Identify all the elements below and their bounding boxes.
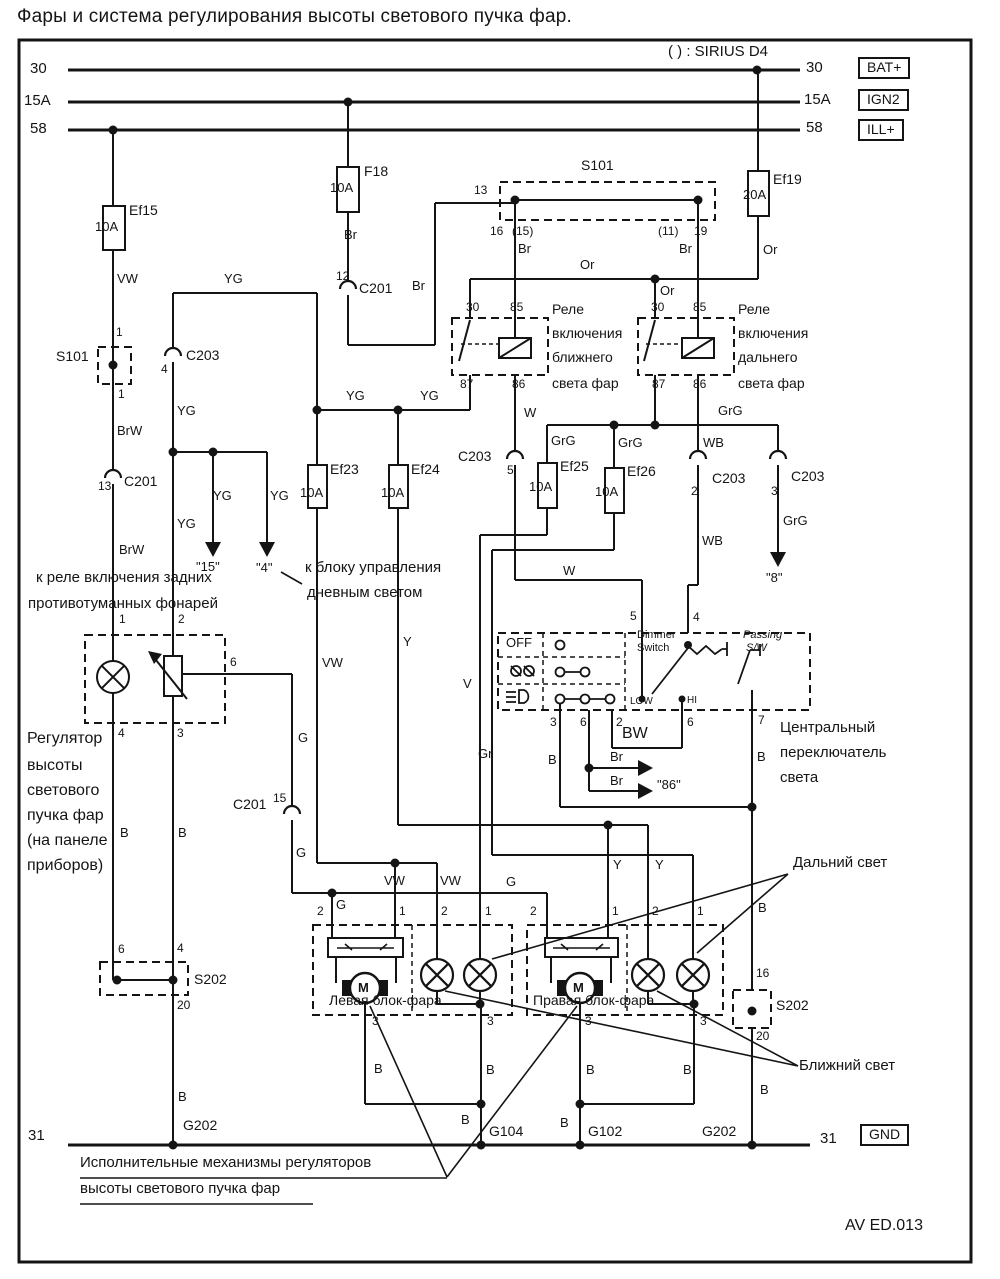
wiring-diagram-svg: [0, 0, 1000, 1279]
s202r-pin20: 20: [756, 1030, 769, 1043]
wire-g-2: G: [296, 846, 306, 860]
drl-note-line2: дневным светом: [307, 585, 422, 601]
fuse-ef25-rating: 10A: [529, 480, 552, 494]
s101-pin19: 19: [694, 225, 707, 238]
c203-5-icon: [507, 451, 523, 459]
fuse-ef23-name: Ef23: [330, 462, 359, 477]
splice-s202-right: S202: [776, 998, 809, 1013]
ground-g202-right: G202: [702, 1124, 736, 1139]
wire-y-1: Y: [403, 635, 412, 649]
switch-contacts: [506, 641, 760, 704]
sirius-note: ( ) : SIRIUS D4: [668, 44, 768, 60]
wire-wb-2: WB: [702, 534, 723, 548]
ground-g202-left: G202: [183, 1118, 217, 1133]
low-beam-callout: Ближний свет: [799, 1058, 895, 1074]
wire-vw-2: VW: [322, 656, 343, 670]
relay2-contact: [644, 320, 655, 361]
central-switch-line3: света: [780, 770, 818, 786]
wire-b-5: B: [758, 901, 767, 915]
high-beam-callout: Дальний свет: [793, 855, 887, 871]
wire-grg-4: GrG: [783, 514, 808, 528]
fuse-ef24-rating: 10A: [381, 486, 404, 500]
s101-pin11p: (11): [658, 225, 678, 238]
bus-15a-right: 15A: [804, 92, 831, 108]
central-switch-line1: Центральный: [780, 720, 875, 736]
wire-b-left1: B: [120, 826, 129, 840]
relay1-pin87: 87: [460, 378, 473, 391]
wire-grg-3: GrG: [718, 404, 743, 418]
hl-pin1b: 1: [485, 905, 492, 918]
bus-30-right: 30: [806, 60, 823, 76]
wiring-diagram-page: Фары и система регулирования высоты свет…: [0, 0, 1000, 1279]
wire-v: V: [463, 677, 472, 691]
wire-yg-7: YG: [420, 389, 439, 403]
relay-low-line2: включения: [552, 326, 622, 341]
wire-b-1: B: [374, 1062, 383, 1076]
motor-m-left: M: [358, 981, 369, 995]
relay-high-line3: дальнего: [738, 350, 798, 365]
wire-yg-2: YG: [177, 404, 196, 418]
regulator-line3: светового: [27, 783, 99, 800]
wire-vw-1: VW: [117, 272, 138, 286]
conn-c201-12: C201: [359, 281, 392, 296]
wire-b-2: B: [486, 1063, 495, 1077]
left-headlamp-label: Левая блок-фара: [329, 993, 442, 1008]
ref-arrow-8: "8": [766, 571, 782, 585]
hl-pin3b: 3: [487, 1015, 494, 1028]
wire-brw-2: BrW: [119, 543, 144, 557]
wire-b-left2: B: [178, 826, 187, 840]
hl-pin1c: 1: [612, 905, 619, 918]
fuse-ef19-rating: 20A: [743, 188, 766, 202]
fuse-f18-rating: 10A: [330, 181, 353, 195]
regulator-internals: [97, 651, 187, 699]
fuse-ef19-name: Ef19: [773, 172, 802, 187]
regulator-line4: пучка фар: [27, 808, 104, 825]
arrow-15: [205, 542, 221, 557]
reg-pin1: 1: [119, 613, 126, 626]
c201-13-icon: [105, 470, 121, 478]
wire-bw: BW: [622, 726, 648, 743]
wire-b-left3: B: [178, 1090, 187, 1104]
conn-c201-15: C201: [233, 797, 266, 812]
switch-off: OFF: [506, 636, 532, 650]
conn-c203-5: C203: [458, 449, 491, 464]
conn-c203-2: C203: [712, 471, 745, 486]
relay1-contact: [459, 320, 470, 361]
wire-grg-1: GrG: [551, 434, 576, 448]
hl-pin3d: 3: [700, 1015, 707, 1028]
splice-s101-left: S101: [56, 349, 89, 364]
regulator-line2: высоты: [27, 758, 83, 775]
ground-g104: G104: [489, 1124, 523, 1139]
arrow-8: [770, 552, 786, 567]
arrow-br-86: [638, 783, 653, 799]
wire-b-6: B: [760, 1083, 769, 1097]
relay-high-line1: Реле: [738, 302, 770, 317]
ground-g102: G102: [588, 1124, 622, 1139]
relay1-pin30: 30: [466, 301, 479, 314]
wire-y-3: Y: [655, 858, 664, 872]
bus-58-left: 58: [30, 121, 47, 137]
relay1-pin86: 86: [512, 378, 525, 391]
relay2-pin87: 87: [652, 378, 665, 391]
ref-arrow-4: "4": [256, 561, 272, 575]
wire-wb-1: WB: [703, 436, 724, 450]
conn-c201-13-pin: 13: [98, 480, 111, 493]
hl-pin1d: 1: [697, 905, 704, 918]
actuator-callout-line2: высоты светового пучка фар: [80, 1181, 280, 1197]
wire-w-1: W: [524, 406, 536, 420]
fuse-ef15-rating: 10A: [95, 220, 118, 234]
reg-pin3: 3: [177, 727, 184, 740]
conn-c203-3: C203: [791, 469, 824, 484]
ill-plus-box: ILL+: [858, 119, 904, 141]
fuse-ef26-name: Ef26: [627, 464, 656, 479]
c203-2-icon: [690, 451, 706, 459]
fog-note-line2: противотуманных фонарей: [28, 596, 218, 612]
fuse-ef23-rating: 10A: [300, 486, 323, 500]
ign2-box: IGN2: [858, 89, 909, 111]
switch-pin6a: 6: [580, 716, 587, 729]
s101-pin16: 16: [490, 225, 503, 238]
switch-pin4: 4: [693, 611, 700, 624]
regulator-line5: (на панеле: [27, 833, 108, 850]
relay-low-line4: света фар: [552, 376, 619, 391]
passing-label2: S/W: [746, 643, 767, 655]
conn-c201-15-pin: 15: [273, 792, 286, 805]
callout-lines: [80, 572, 798, 1204]
wire-br-s101l: Br: [518, 242, 531, 256]
switch-pin6b: 6: [687, 716, 694, 729]
s202l-pin6: 6: [118, 943, 125, 956]
dimmer-spring: [688, 642, 727, 656]
s101-left-pin3: 1: [118, 388, 125, 401]
dimmer-low: LOW: [630, 697, 653, 708]
fuse-ef26-rating: 10A: [595, 485, 618, 499]
hl-pin2a: 2: [317, 905, 324, 918]
wire-vw-4: VW: [440, 874, 461, 888]
wire-g-1: G: [298, 731, 308, 745]
wire-g-3: G: [336, 898, 346, 912]
conn-c201-12-pin: 12: [336, 270, 349, 283]
fuse-ef25-name: Ef25: [560, 459, 589, 474]
wire-br-f18: Br: [344, 228, 357, 242]
arrow-br-1: [638, 760, 653, 776]
wire-grg-2: GrG: [618, 436, 643, 450]
reg-pin2: 2: [178, 613, 185, 626]
switch-pin3: 3: [550, 716, 557, 729]
wire-b-3: B: [586, 1063, 595, 1077]
wire-yg-6: YG: [346, 389, 365, 403]
regulator-line1: Регулятор: [27, 731, 102, 748]
switch-pin7: 7: [758, 714, 765, 727]
fuse-ef24-name: Ef24: [411, 462, 440, 477]
gnd-box: GND: [860, 1124, 909, 1146]
wire-b-4: B: [683, 1063, 692, 1077]
conn-c203-5-pin: 5: [507, 464, 514, 477]
wire-br-feed: Br: [412, 279, 425, 293]
wire-or-bus: Or: [580, 258, 594, 272]
diagram-code: AV ED.013: [845, 1218, 923, 1235]
right-headlamp-label: Правая блок-фара: [533, 993, 654, 1008]
hl-pin3a: 3: [372, 1015, 379, 1028]
relay-low-line1: Реле: [552, 302, 584, 317]
s202l-pin20: 20: [177, 999, 190, 1012]
motor-m-right: M: [573, 981, 584, 995]
wire-y-2: Y: [613, 858, 622, 872]
conn-c203-2-pin: 2: [691, 485, 698, 498]
dimmer-label2: Switch: [637, 643, 669, 655]
conn-c203-4-pin: 4: [161, 363, 168, 376]
fuse-f18-name: F18: [364, 164, 388, 179]
wire-br-arrow1: Br: [610, 750, 623, 764]
wire-br-arrow2: Br: [610, 774, 623, 788]
bus-31-left: 31: [28, 1128, 45, 1144]
dimmer-label1: Dimmer: [637, 630, 676, 642]
wire-or-2: Or: [660, 284, 674, 298]
reg-pin6: 6: [230, 656, 237, 669]
s101-pin13: 13: [474, 184, 487, 197]
reg-pin4: 4: [118, 727, 125, 740]
regulator-line6: приборов): [27, 858, 103, 875]
wire-yg-top: YG: [224, 272, 243, 286]
wire-g-4: G: [506, 875, 516, 889]
c203-3-icon: [770, 451, 786, 459]
passing-label1: Passing: [743, 630, 782, 642]
central-switch-line2: переключатель: [780, 745, 887, 761]
headlight-icon: [506, 690, 528, 703]
hl-pin2d: 2: [652, 905, 659, 918]
bat-plus-box: BAT+: [858, 57, 910, 79]
wire-brw-1: BrW: [117, 424, 142, 438]
conn-c201-13: C201: [124, 474, 157, 489]
wire-yg-5: YG: [177, 517, 196, 531]
wire-br-s101r: Br: [679, 242, 692, 256]
actuator-callout-line1: Исполнительные механизмы регуляторов: [80, 1155, 371, 1171]
s202r-pin16: 16: [756, 967, 769, 980]
parking-light-icon: [511, 666, 534, 676]
conn-c203-3-pin: 3: [771, 485, 778, 498]
wire-gr: Gr: [478, 747, 492, 761]
wire-w-2: W: [563, 564, 575, 578]
fog-note-line1: к реле включения задних: [36, 570, 212, 586]
bus-31-right: 31: [820, 1131, 837, 1147]
splice-s101-top: S101: [581, 158, 614, 173]
s101-pin15p: (15): [512, 225, 533, 238]
ref-arrow-86: "86": [657, 778, 681, 792]
drl-note-line1: к блоку управления: [305, 560, 441, 576]
dimmer-hi: HI: [687, 696, 697, 707]
switch-pin5: 5: [630, 610, 637, 623]
s101-left-pin1: 1: [116, 326, 123, 339]
relay-low-line3: ближнего: [552, 350, 613, 365]
wire-b-sw1: B: [548, 753, 557, 767]
conn-c203-4: C203: [186, 348, 219, 363]
splice-s202-left: S202: [194, 972, 227, 987]
dimmer-arm: [652, 648, 688, 694]
s202l-pin4: 4: [177, 942, 184, 955]
wire-vw-3: VW: [384, 874, 405, 888]
wire-b-8: B: [560, 1116, 569, 1130]
hl-pin2b: 2: [441, 905, 448, 918]
relay-high-line4: света фар: [738, 376, 805, 391]
bus-30-left: 30: [30, 61, 47, 77]
bus-15a-left: 15A: [24, 93, 51, 109]
relay2-pin85: 85: [693, 301, 706, 314]
wire-b-sw2: B: [757, 750, 766, 764]
hl-pin1a: 1: [399, 905, 406, 918]
relay1-pin85: 85: [510, 301, 523, 314]
hl-pin3c: 3: [585, 1015, 592, 1028]
wire-yg-4: YG: [270, 489, 289, 503]
wire-or-3: Or: [763, 243, 777, 257]
bus-58-right: 58: [806, 120, 823, 136]
hl-pin2c: 2: [530, 905, 537, 918]
arrow-4: [259, 542, 275, 557]
c201-15-icon: [284, 806, 300, 814]
wire-b-7: B: [461, 1113, 470, 1127]
wire-yg-3: YG: [213, 489, 232, 503]
relay2-pin86: 86: [693, 378, 706, 391]
c203-4-icon: [165, 348, 181, 356]
rheostat-arrow: [148, 651, 162, 664]
fuse-ef15-name: Ef15: [129, 203, 158, 218]
relay-high-line2: включения: [738, 326, 808, 341]
relay2-pin30: 30: [651, 301, 664, 314]
